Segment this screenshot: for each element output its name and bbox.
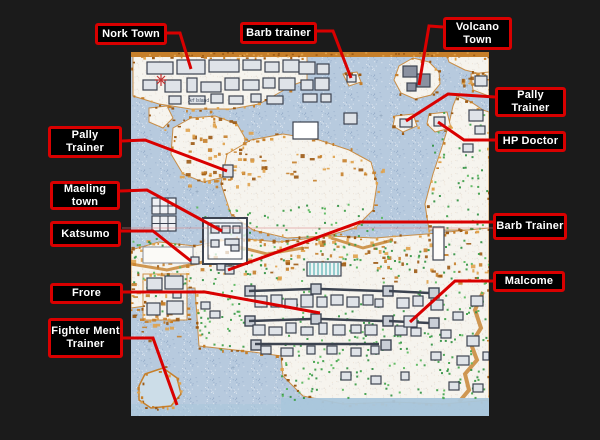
label-fighter-ment-trainer-text: Trainer: [66, 338, 104, 351]
label-barb-trainer-right-text: Barb Trainer: [496, 220, 563, 233]
label-pally-trainer-right: PallyTrainer: [495, 87, 566, 117]
label-pally-trainer-left-text: Trainer: [66, 142, 104, 155]
label-hp-doctor: HP Doctor: [495, 131, 566, 152]
label-nork-town-text: Nork Town: [102, 28, 160, 41]
label-pally-trainer-right-text: Trainer: [511, 102, 549, 115]
label-nork-town: Nork Town: [95, 23, 167, 45]
label-maeling-town: Maelingtown: [50, 181, 120, 210]
label-katsumo: Katsumo: [50, 221, 121, 247]
label-malcome: Malcome: [493, 271, 565, 292]
label-fighter-ment-trainer-text: Fighter Ment: [51, 325, 119, 338]
label-malcome-text: Malcome: [505, 275, 553, 288]
annotated-game-map: ++++++++++Arf Island Nork TownBarb train…: [0, 0, 600, 440]
label-barb-trainer-top: Barb trainer: [240, 22, 317, 44]
label-barb-trainer-right: Barb Trainer: [493, 213, 567, 240]
label-hp-doctor-text: HP Doctor: [503, 135, 558, 148]
label-maeling-town-text: town: [72, 196, 98, 209]
label-volcano-town-text: Town: [463, 34, 492, 47]
label-fighter-ment-trainer: Fighter MentTrainer: [48, 318, 123, 358]
label-frore-text: Frore: [72, 287, 101, 300]
label-maeling-town-text: Maeling: [64, 183, 106, 196]
label-pally-trainer-right-text: Pally: [517, 89, 544, 102]
label-frore: Frore: [50, 283, 123, 304]
label-volcano-town: VolcanoTown: [443, 17, 512, 50]
label-barb-trainer-top-text: Barb trainer: [246, 27, 311, 40]
label-katsumo-text: Katsumo: [61, 228, 109, 241]
label-pally-trainer-left-text: Pally: [72, 129, 99, 142]
label-volcano-town-text: Volcano: [456, 21, 499, 34]
label-layer: Nork TownBarb trainerVolcanoTownPallyTra…: [0, 0, 600, 440]
label-pally-trainer-left: PallyTrainer: [48, 126, 122, 158]
